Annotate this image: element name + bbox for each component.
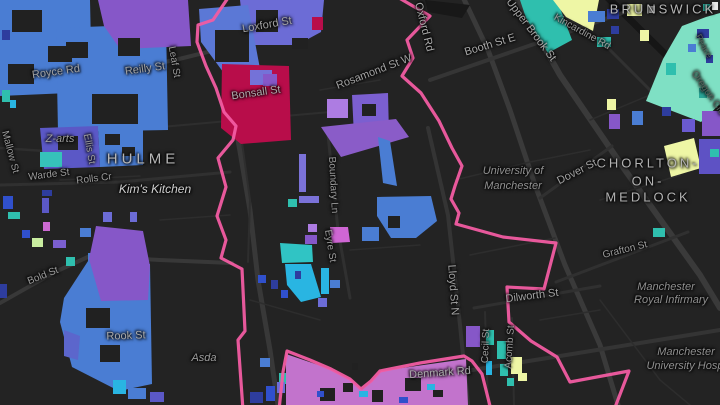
building-polygon: [330, 227, 350, 243]
building-polygon: [130, 212, 137, 222]
building-polygon: [266, 386, 275, 401]
building-polygon: [0, 284, 7, 298]
building-polygon: [486, 330, 494, 345]
building-polygon: [362, 227, 379, 241]
building-polygon: [497, 341, 506, 359]
building-polygon: [703, 4, 710, 11]
building-polygon: [12, 10, 42, 32]
building-polygon: [299, 154, 306, 192]
road-line: [540, 146, 612, 198]
building-polygon: [632, 111, 643, 125]
building-polygon: [664, 138, 701, 177]
building-polygon: [321, 268, 329, 294]
building-polygon: [100, 345, 120, 362]
building-polygon: [2, 90, 10, 102]
building-polygon: [706, 55, 713, 63]
building-polygon: [611, 26, 619, 34]
building-polygon: [150, 392, 164, 402]
building-polygon: [649, 6, 655, 13]
building-polygon: [280, 243, 313, 263]
road-line: [250, 300, 320, 320]
building-polygon: [256, 10, 278, 32]
road-line: [350, 245, 420, 250]
building-polygon: [433, 390, 443, 397]
building-polygon: [511, 357, 522, 374]
building-polygon: [258, 275, 266, 283]
building-polygon: [118, 38, 140, 56]
building-polygon: [113, 380, 126, 394]
building-polygon: [42, 190, 52, 196]
map-canvas[interactable]: HULMEBRUNSWICKCHORLTON-ON-MEDLOCKRoyce R…: [0, 0, 720, 405]
building-polygon: [427, 384, 435, 390]
building-polygon: [105, 134, 120, 145]
building-polygon: [281, 290, 288, 298]
building-polygon: [66, 42, 88, 58]
building-polygon: [607, 99, 616, 110]
building-polygon: [518, 373, 527, 381]
building-polygon: [66, 257, 75, 266]
building-polygon: [299, 196, 319, 203]
building-polygon: [2, 30, 10, 40]
building-polygon: [285, 264, 321, 302]
building-polygon: [317, 391, 324, 397]
building-polygon: [292, 38, 308, 49]
building-polygon: [3, 196, 13, 209]
building-polygon: [318, 298, 327, 307]
building-polygon: [53, 240, 66, 248]
building-polygon: [712, 2, 718, 10]
building-polygon: [122, 147, 135, 156]
building-polygon: [312, 17, 323, 30]
road-line: [60, 176, 140, 180]
building-polygon: [372, 390, 383, 402]
building-polygon: [466, 326, 480, 347]
building-polygon: [260, 358, 270, 367]
building-polygon: [58, 136, 78, 150]
building-polygon: [507, 378, 514, 386]
road-line: [600, 175, 680, 200]
building-polygon: [215, 30, 249, 62]
building-polygon: [40, 152, 62, 167]
building-polygon: [86, 308, 110, 328]
building-polygon: [352, 363, 358, 370]
building-polygon: [405, 378, 421, 391]
building-polygon: [92, 94, 138, 124]
road-line: [320, 80, 380, 90]
building-polygon: [378, 137, 397, 186]
building-polygon: [359, 391, 368, 397]
building-polygon: [42, 198, 49, 213]
building-polygon: [362, 104, 376, 116]
building-polygon: [653, 228, 665, 237]
building-polygon: [682, 119, 695, 132]
building-polygon: [343, 383, 353, 392]
building-polygon: [263, 74, 277, 86]
building-polygon: [697, 29, 709, 38]
road-line: [556, 232, 688, 282]
building-polygon: [128, 388, 146, 399]
building-polygon: [627, 4, 642, 16]
building-polygon: [702, 111, 720, 136]
building-polygon: [32, 238, 43, 247]
building-polygon: [486, 361, 492, 375]
road-line: [0, 172, 230, 185]
building-polygon: [609, 114, 620, 129]
building-polygon: [710, 149, 719, 157]
building-polygon: [98, 126, 143, 167]
building-polygon: [250, 392, 263, 403]
building-polygon: [607, 9, 619, 19]
building-polygon: [305, 235, 317, 244]
building-polygon: [688, 44, 696, 52]
building-polygon: [588, 11, 605, 22]
building-polygon: [666, 63, 676, 75]
building-polygon: [308, 224, 317, 232]
building-polygon: [271, 280, 278, 289]
building-polygon: [699, 88, 707, 98]
building-polygon: [8, 212, 20, 219]
building-polygon: [377, 196, 437, 238]
building-polygon: [327, 99, 348, 118]
road-line: [236, 128, 278, 405]
building-polygon: [89, 226, 150, 301]
building-polygon: [80, 228, 91, 237]
building-polygon: [43, 222, 50, 231]
building-polygon: [500, 364, 508, 376]
building-polygon: [330, 280, 340, 288]
building-polygon: [597, 37, 611, 47]
building-polygon: [640, 30, 649, 41]
building-polygon: [103, 212, 112, 222]
road-line: [328, 135, 350, 298]
building-polygon: [388, 216, 400, 228]
building-polygon: [662, 107, 671, 116]
map-tiles: [0, 0, 720, 405]
building-polygon: [321, 119, 409, 157]
building-polygon: [10, 100, 16, 108]
building-polygon: [288, 199, 297, 207]
building-polygon: [8, 64, 34, 84]
building-polygon: [399, 397, 408, 403]
building-polygon: [295, 271, 301, 279]
building-polygon: [22, 230, 30, 238]
